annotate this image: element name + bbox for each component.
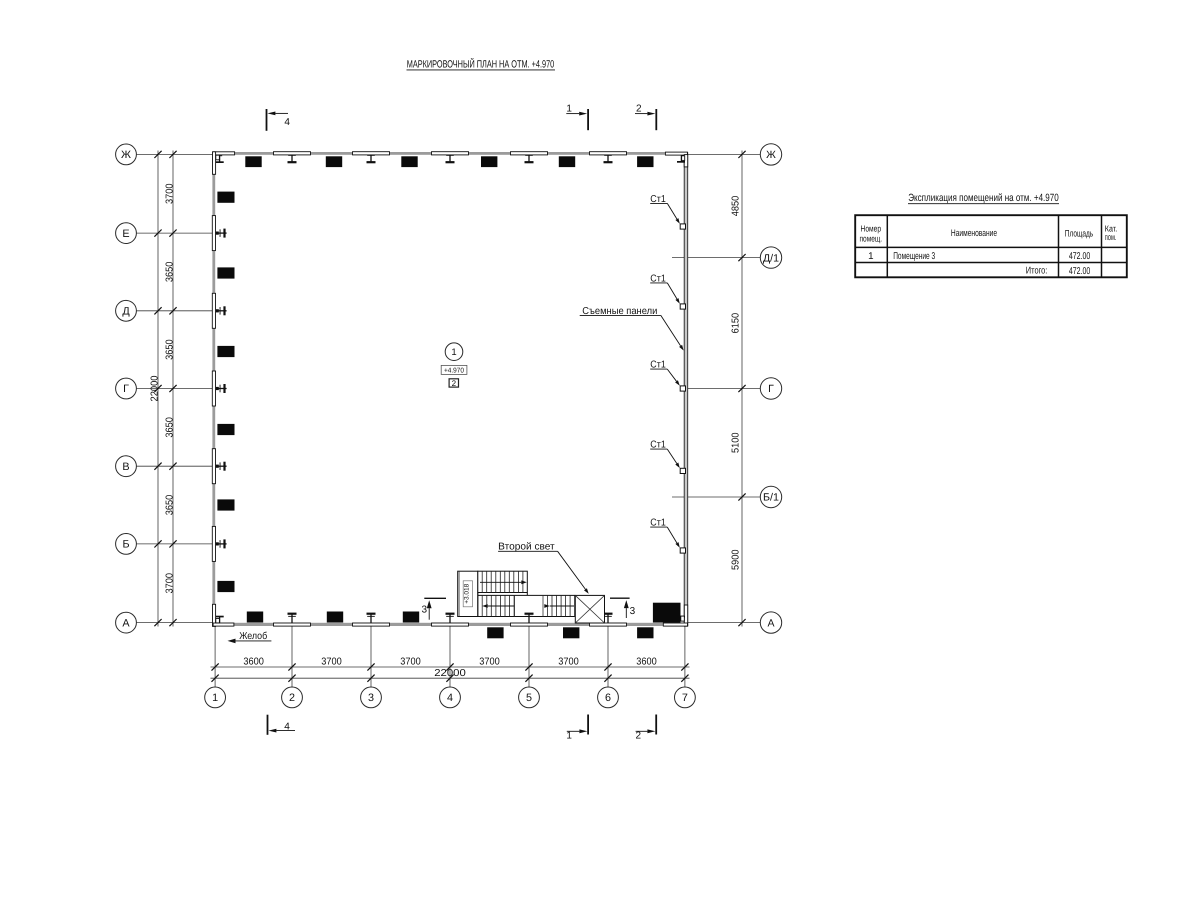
svg-text:Ж: Ж bbox=[121, 149, 131, 161]
svg-text:2: 2 bbox=[452, 379, 457, 388]
svg-text:1: 1 bbox=[451, 347, 456, 358]
svg-text:3700: 3700 bbox=[558, 656, 579, 667]
svg-text:Итого:: Итого: bbox=[1026, 265, 1048, 276]
svg-text:4: 4 bbox=[447, 692, 453, 704]
svg-text:Д/1: Д/1 bbox=[763, 252, 779, 264]
svg-text:МАРКИРОВОЧНЫЙ ПЛАН НА ОТМ. +4.: МАРКИРОВОЧНЫЙ ПЛАН НА ОТМ. +4.970 bbox=[407, 57, 555, 70]
svg-text:3700: 3700 bbox=[479, 656, 500, 667]
svg-text:3650: 3650 bbox=[165, 417, 176, 438]
svg-text:1: 1 bbox=[868, 251, 873, 262]
svg-text:3600: 3600 bbox=[243, 656, 264, 667]
svg-text:4850: 4850 bbox=[731, 195, 742, 216]
svg-text:Номер: Номер bbox=[861, 223, 882, 233]
svg-text:2: 2 bbox=[289, 692, 295, 704]
svg-text:4: 4 bbox=[284, 117, 290, 128]
svg-text:22000: 22000 bbox=[434, 668, 466, 679]
svg-text:6150: 6150 bbox=[731, 312, 742, 333]
svg-text:1: 1 bbox=[566, 104, 572, 115]
svg-text:пом.: пом. bbox=[1105, 232, 1117, 242]
svg-text:3: 3 bbox=[422, 605, 428, 616]
svg-text:Площадь: Площадь bbox=[1065, 228, 1093, 239]
svg-text:22000: 22000 bbox=[150, 375, 161, 401]
svg-text:Наименование: Наименование bbox=[951, 228, 997, 239]
svg-text:Б/1: Б/1 bbox=[763, 492, 779, 504]
svg-text:А: А bbox=[122, 617, 130, 629]
svg-text:3650: 3650 bbox=[165, 494, 176, 515]
svg-text:3700: 3700 bbox=[165, 573, 176, 594]
svg-text:помещ.: помещ. bbox=[860, 233, 883, 243]
svg-text:Ж: Ж bbox=[766, 149, 776, 161]
svg-text:2: 2 bbox=[636, 731, 642, 742]
svg-text:В: В bbox=[122, 461, 129, 473]
svg-text:Помещение 3: Помещение 3 bbox=[893, 251, 935, 262]
svg-text:3: 3 bbox=[368, 692, 374, 704]
svg-text:1: 1 bbox=[212, 692, 218, 704]
svg-text:5100: 5100 bbox=[731, 432, 742, 453]
svg-text:472.00: 472.00 bbox=[1069, 266, 1091, 277]
svg-text:6: 6 bbox=[605, 692, 611, 704]
svg-text:Е: Е bbox=[122, 228, 129, 240]
svg-text:5900: 5900 bbox=[731, 549, 742, 570]
svg-text:472.00: 472.00 bbox=[1069, 251, 1091, 262]
svg-text:Г: Г bbox=[123, 383, 129, 395]
svg-text:Д: Д bbox=[122, 306, 130, 318]
svg-text:2: 2 bbox=[636, 104, 642, 115]
svg-text:+3.018: +3.018 bbox=[463, 583, 470, 603]
svg-text:Б: Б bbox=[122, 539, 129, 551]
svg-text:4: 4 bbox=[284, 721, 290, 732]
svg-text:3700: 3700 bbox=[321, 656, 342, 667]
svg-text:Г: Г bbox=[768, 383, 774, 395]
svg-text:3650: 3650 bbox=[165, 261, 176, 282]
svg-text:3600: 3600 bbox=[636, 656, 657, 667]
svg-text:+4.970: +4.970 bbox=[444, 367, 464, 374]
svg-text:3700: 3700 bbox=[165, 183, 176, 204]
svg-text:3650: 3650 bbox=[165, 339, 176, 360]
svg-text:3700: 3700 bbox=[400, 656, 421, 667]
svg-text:1: 1 bbox=[566, 731, 572, 742]
svg-text:7: 7 bbox=[682, 692, 688, 704]
svg-text:5: 5 bbox=[526, 692, 532, 704]
svg-text:Экспликация помещений на отм.: Экспликация помещений на отм. +4.970 bbox=[908, 192, 1059, 204]
svg-text:3: 3 bbox=[630, 606, 636, 617]
svg-text:А: А bbox=[767, 617, 774, 629]
